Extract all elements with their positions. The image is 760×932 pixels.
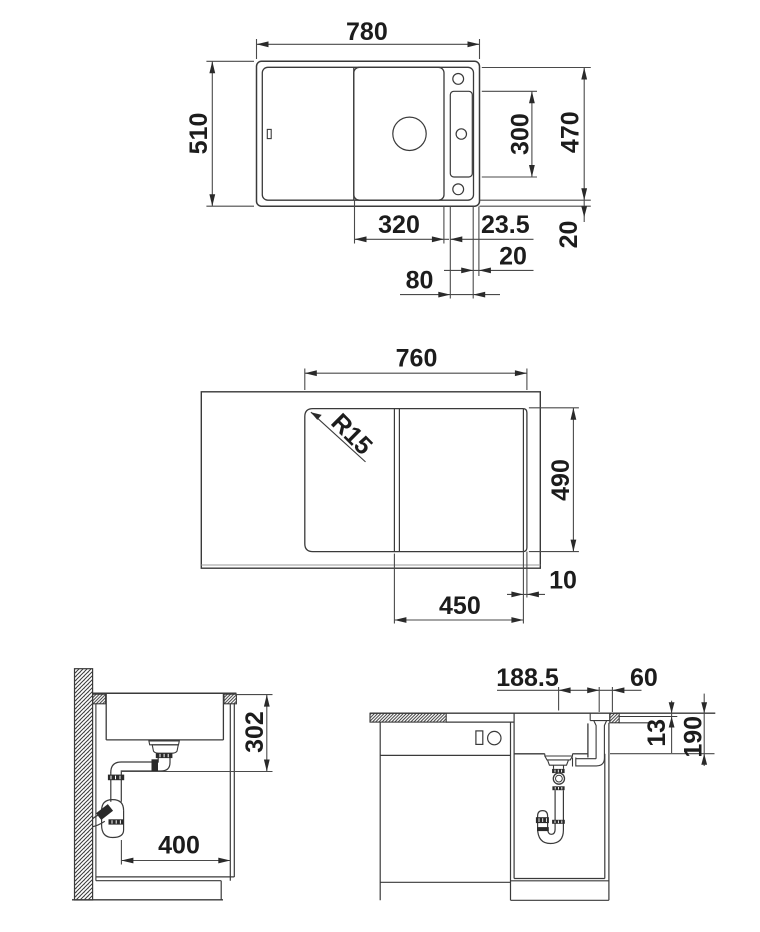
svg-text:470: 470 [557,111,585,153]
svg-text:23.5: 23.5 [481,211,530,239]
svg-text:400: 400 [158,832,200,860]
svg-text:20: 20 [499,243,527,271]
svg-text:20: 20 [555,221,583,249]
svg-text:780: 780 [346,18,388,46]
svg-text:302: 302 [241,711,269,753]
svg-text:60: 60 [630,664,658,692]
svg-text:490: 490 [547,459,575,501]
svg-text:R15: R15 [326,408,378,460]
svg-text:13: 13 [643,719,671,747]
svg-text:320: 320 [378,211,420,239]
svg-text:188.5: 188.5 [496,664,559,692]
svg-text:760: 760 [396,345,438,373]
svg-text:80: 80 [406,267,434,295]
svg-text:510: 510 [185,113,213,155]
svg-text:190: 190 [680,716,708,758]
svg-text:10: 10 [549,567,577,595]
svg-text:300: 300 [506,113,534,155]
svg-text:450: 450 [439,592,481,620]
